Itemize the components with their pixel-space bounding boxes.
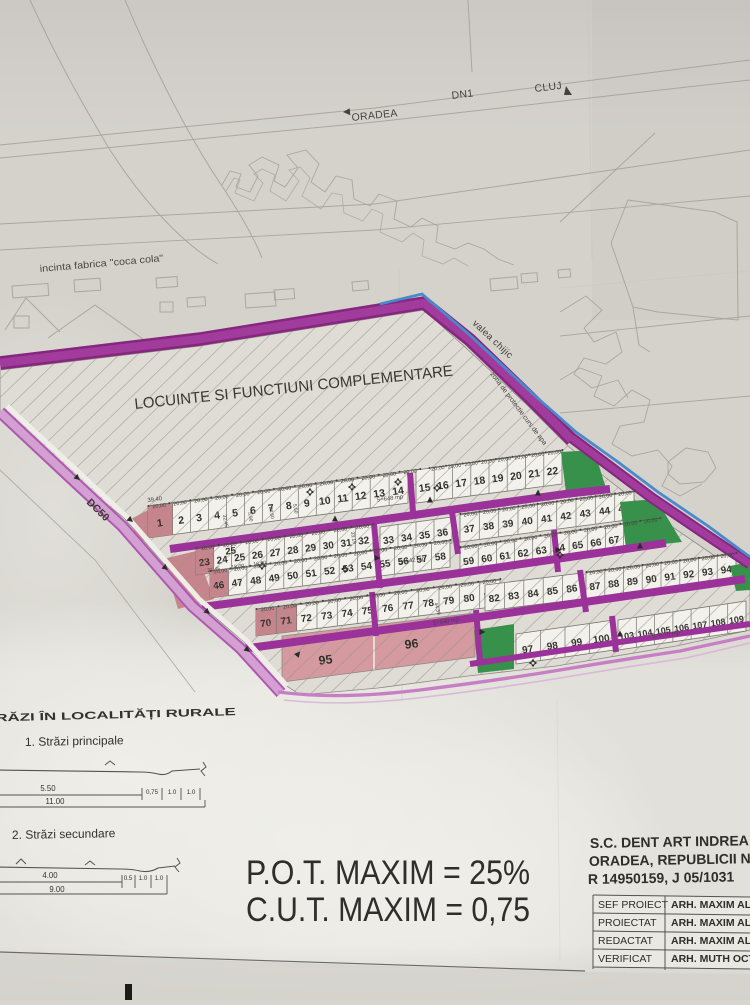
svg-text:27: 27	[269, 547, 282, 559]
svg-text:90: 90	[645, 574, 658, 586]
svg-text:50: 50	[287, 570, 300, 582]
svg-text:1. Străzi principale: 1. Străzi principale	[25, 733, 124, 749]
svg-text:37: 37	[463, 523, 476, 535]
svg-text:89: 89	[626, 576, 639, 588]
svg-text:17: 17	[455, 477, 468, 490]
svg-text:P.O.T. MAXIM = 25%: P.O.T. MAXIM = 25%	[246, 854, 530, 892]
svg-text:ORADEA, REPUBLICII N: ORADEA, REPUBLICII N	[589, 850, 750, 869]
svg-text:ARH. MAXIM ALE: ARH. MAXIM ALE	[671, 917, 750, 929]
svg-text:0,75: 0,75	[146, 789, 159, 796]
svg-text:91: 91	[664, 571, 677, 583]
svg-text:1.0: 1.0	[168, 789, 177, 796]
svg-text:52: 52	[323, 565, 336, 577]
svg-text:11.00: 11.00	[46, 797, 66, 806]
svg-text:SEF PROIECT: SEF PROIECT	[598, 899, 669, 911]
svg-text:59: 59	[462, 556, 475, 569]
svg-text:61: 61	[499, 550, 512, 563]
svg-text:0.5: 0.5	[124, 875, 133, 882]
svg-text:ARH. MAXIM ALE: ARH. MAXIM ALE	[671, 899, 750, 911]
svg-text:72: 72	[300, 613, 313, 625]
svg-text:5.50: 5.50	[40, 784, 56, 793]
svg-text:51: 51	[305, 568, 318, 580]
svg-text:PROIECTAT: PROIECTAT	[598, 917, 657, 929]
svg-text:34: 34	[400, 532, 413, 544]
svg-text:30: 30	[322, 540, 335, 552]
svg-text:16: 16	[436, 479, 449, 492]
svg-text:12: 12	[354, 490, 367, 503]
svg-text:REDACTAT: REDACTAT	[598, 935, 654, 947]
svg-text:35: 35	[418, 530, 431, 542]
svg-text:74: 74	[341, 608, 354, 620]
svg-text:1.0: 1.0	[187, 789, 196, 796]
svg-text:32: 32	[358, 535, 371, 547]
svg-text:86: 86	[566, 583, 579, 595]
svg-text:48: 48	[250, 575, 263, 587]
svg-text:38: 38	[482, 521, 495, 533]
svg-text:9.00: 9.00	[49, 885, 65, 894]
svg-text:87: 87	[589, 581, 602, 593]
svg-text:39: 39	[502, 518, 515, 530]
svg-text:R 14950159, J 05/1031: R 14950159, J 05/1031	[588, 868, 735, 887]
svg-text:ARH. MUTH OCT: ARH. MUTH OCT	[671, 953, 750, 965]
svg-text:47: 47	[231, 577, 244, 589]
svg-text:19: 19	[491, 472, 504, 485]
svg-text:S.C. DENT ART INDREA: S.C. DENT ART INDREA	[590, 832, 749, 851]
svg-text:77: 77	[402, 600, 415, 612]
svg-text:10: 10	[318, 494, 331, 507]
svg-text:1.0: 1.0	[155, 875, 164, 882]
svg-text:22: 22	[546, 465, 559, 478]
svg-text:1.0: 1.0	[139, 875, 148, 882]
svg-text:46: 46	[213, 580, 226, 592]
svg-text:92: 92	[683, 569, 696, 581]
svg-text:C.U.T. MAXIM = 0,75: C.U.T. MAXIM = 0,75	[246, 891, 530, 929]
svg-text:4.00: 4.00	[42, 871, 58, 880]
svg-text:62: 62	[517, 548, 530, 561]
svg-text:42: 42	[560, 511, 573, 523]
svg-text:25: 25	[225, 545, 238, 557]
svg-text:65: 65	[572, 540, 585, 553]
svg-text:44: 44	[598, 505, 611, 517]
svg-text:88: 88	[608, 578, 621, 590]
svg-text:VERIFICAT: VERIFICAT	[598, 953, 653, 965]
svg-text:2. Străzi secundare: 2. Străzi secundare	[12, 826, 116, 842]
svg-text:58: 58	[434, 551, 447, 563]
svg-text:ARH. MAXIM ALE: ARH. MAXIM ALE	[671, 935, 750, 947]
svg-text:66: 66	[590, 537, 603, 550]
svg-text:40: 40	[521, 516, 534, 528]
svg-text:28: 28	[287, 545, 300, 557]
svg-text:84: 84	[527, 588, 540, 600]
svg-text:85: 85	[546, 586, 559, 598]
svg-text:95: 95	[318, 652, 334, 668]
svg-text:21: 21	[528, 467, 541, 480]
svg-text:73: 73	[321, 610, 334, 622]
svg-text:82: 82	[488, 593, 501, 605]
svg-text:93: 93	[701, 567, 714, 579]
